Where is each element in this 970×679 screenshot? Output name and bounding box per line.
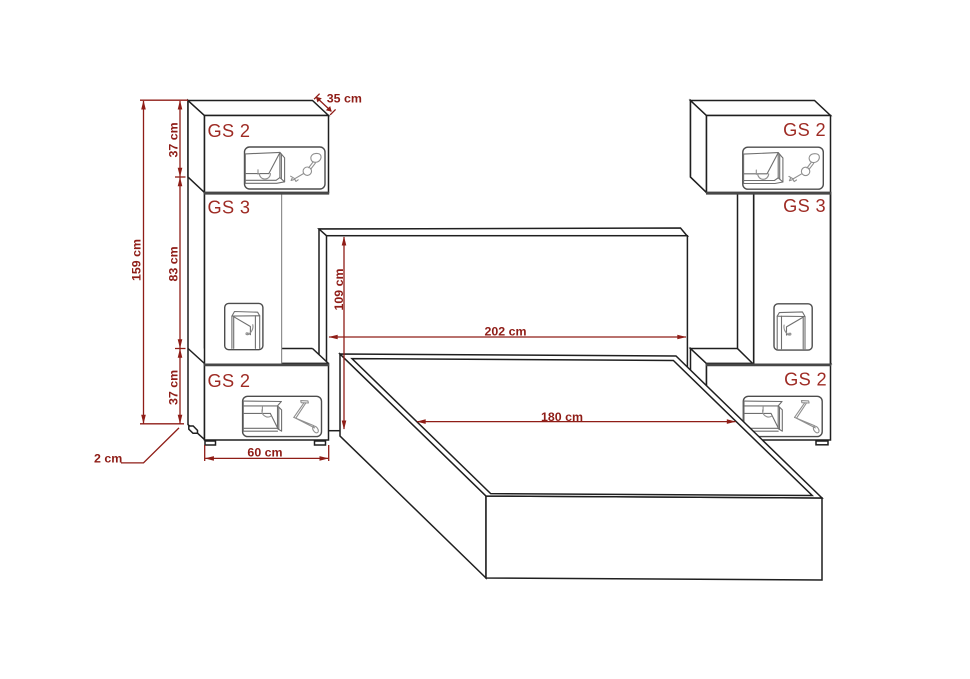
svg-text:GS 2: GS 2 [783,120,826,140]
svg-text:2 cm: 2 cm [94,452,122,466]
svg-text:GS 3: GS 3 [783,196,826,216]
svg-text:37 cm: 37 cm [167,370,181,405]
svg-text:83 cm: 83 cm [167,246,181,281]
svg-text:159 cm: 159 cm [130,239,144,281]
svg-text:60 cm: 60 cm [247,446,282,460]
svg-text:180 cm: 180 cm [541,410,583,424]
svg-text:35 cm: 35 cm [327,92,362,106]
svg-text:GS 2: GS 2 [208,121,251,141]
svg-text:202 cm: 202 cm [484,324,526,338]
svg-text:37 cm: 37 cm [167,122,181,157]
svg-text:GS 3: GS 3 [208,198,251,218]
svg-text:109 cm: 109 cm [332,268,346,310]
svg-text:GS 2: GS 2 [784,370,827,390]
svg-text:GS 2: GS 2 [208,371,251,391]
